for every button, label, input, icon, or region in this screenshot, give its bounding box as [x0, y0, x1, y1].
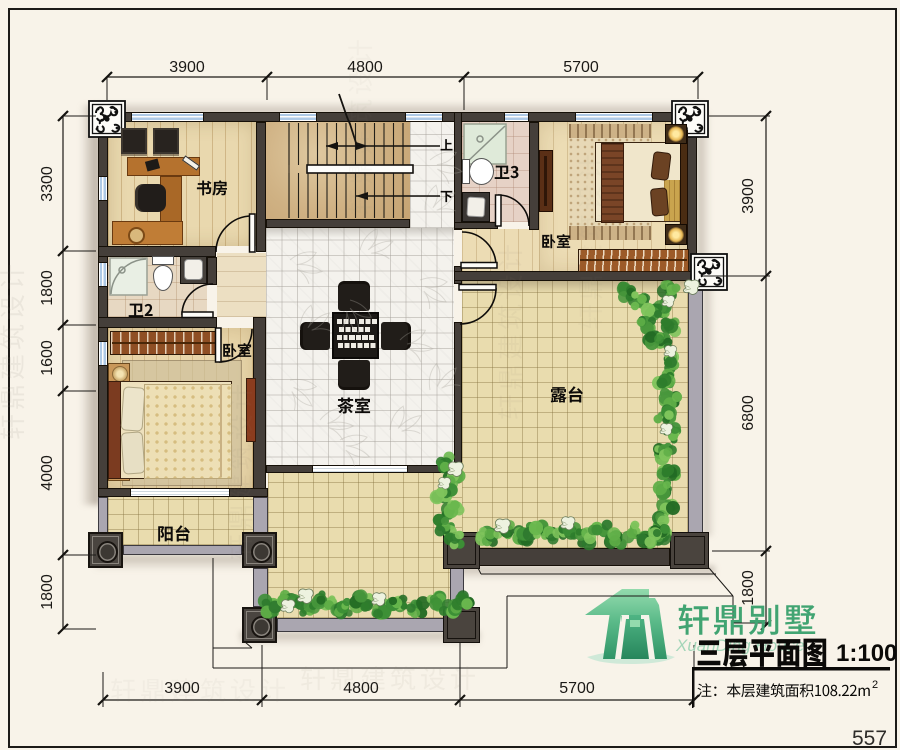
svg-text:2: 2 — [872, 679, 878, 691]
svg-text:5700: 5700 — [563, 59, 599, 76]
svg-text:1:100: 1:100 — [836, 640, 897, 667]
svg-text:5700: 5700 — [559, 680, 595, 697]
svg-text:3300: 3300 — [39, 166, 56, 202]
svg-text:4800: 4800 — [347, 59, 383, 76]
svg-text:1800: 1800 — [39, 270, 56, 306]
svg-text:1800: 1800 — [740, 570, 757, 606]
svg-text:6800: 6800 — [740, 395, 757, 431]
svg-text:557: 557 — [852, 727, 887, 750]
svg-text:3900: 3900 — [169, 59, 205, 76]
svg-text:1800: 1800 — [39, 574, 56, 610]
svg-text:4000: 4000 — [39, 455, 56, 491]
svg-text:3900: 3900 — [740, 178, 757, 214]
svg-text:1600: 1600 — [39, 340, 56, 376]
